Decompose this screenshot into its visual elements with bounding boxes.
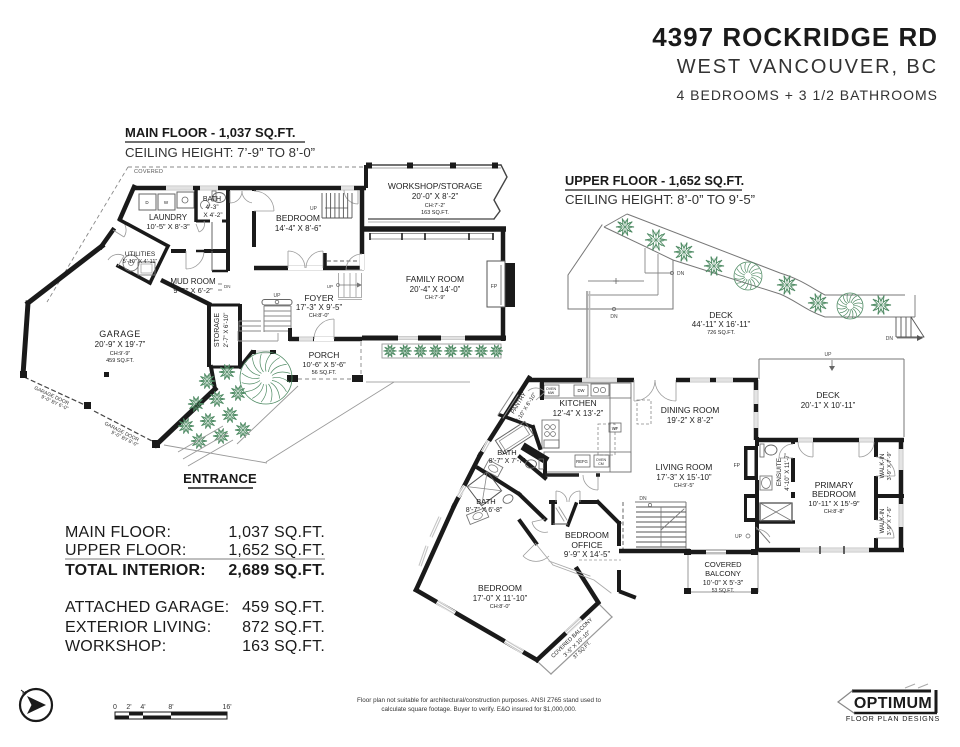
svg-text:459 SQ.FT.: 459 SQ.FT. bbox=[106, 358, 134, 364]
svg-text:CEILING HEIGHT: 8’-0” TO 9’-5”: CEILING HEIGHT: 8’-0” TO 9’-5” bbox=[565, 192, 755, 207]
svg-text:X 4’-2”: X 4’-2” bbox=[203, 212, 222, 219]
svg-text:WEST VANCOUVER, BC: WEST VANCOUVER, BC bbox=[677, 56, 938, 78]
svg-text:WF: WF bbox=[612, 426, 619, 431]
svg-text:BEDROOM: BEDROOM bbox=[812, 489, 856, 499]
svg-text:DN: DN bbox=[886, 336, 894, 342]
svg-text:8’-7” X 7’-7”: 8’-7” X 7’-7” bbox=[489, 458, 526, 465]
svg-text:FLOOR PLAN DESIGNS: FLOOR PLAN DESIGNS bbox=[846, 714, 940, 723]
svg-text:20’-1” X 10’-11”: 20’-1” X 10’-11” bbox=[801, 401, 856, 410]
svg-text:UP: UP bbox=[825, 352, 833, 358]
svg-text:459 SQ.FT.: 459 SQ.FT. bbox=[242, 599, 325, 616]
svg-text:BALCONY: BALCONY bbox=[705, 569, 741, 578]
svg-text:4 BEDROOMS + 3 1/2 BATHROOMS: 4 BEDROOMS + 3 1/2 BATHROOMS bbox=[676, 87, 938, 103]
svg-text:BEDROOM: BEDROOM bbox=[565, 530, 609, 540]
svg-text:FP: FP bbox=[734, 463, 741, 469]
svg-text:DW: DW bbox=[578, 388, 585, 393]
svg-text:WALK-IN: WALK-IN bbox=[880, 454, 886, 479]
svg-text:DECK: DECK bbox=[816, 390, 840, 400]
svg-text:LAUNDRY: LAUNDRY bbox=[149, 213, 188, 222]
svg-text:3’-9” X 7’-9”: 3’-9” X 7’-9” bbox=[887, 451, 893, 480]
svg-text:FOYER: FOYER bbox=[304, 293, 333, 303]
svg-text:9’-9” X 14’-5”: 9’-9” X 14’-5” bbox=[564, 550, 611, 559]
svg-text:BEDROOM: BEDROOM bbox=[478, 583, 522, 593]
svg-text:DINING ROOM: DINING ROOM bbox=[661, 405, 720, 415]
svg-text:OFFICE: OFFICE bbox=[571, 540, 602, 550]
svg-text:WORKSHOP/STORAGE: WORKSHOP/STORAGE bbox=[388, 181, 483, 191]
svg-text:WALK-IN: WALK-IN bbox=[880, 509, 886, 534]
svg-text:4': 4' bbox=[140, 704, 145, 711]
svg-text:17’-0” X 11’-10”: 17’-0” X 11’-10” bbox=[473, 594, 528, 603]
svg-text:BATH: BATH bbox=[497, 448, 516, 457]
svg-text:16': 16' bbox=[222, 704, 231, 711]
svg-text:10’-11” X 15’-9”: 10’-11” X 15’-9” bbox=[808, 499, 860, 508]
svg-text:19’-2” X 8’-2”: 19’-2” X 8’-2” bbox=[667, 416, 714, 425]
svg-text:8': 8' bbox=[168, 704, 173, 711]
svg-text:CH:8’-8”: CH:8’-8” bbox=[824, 509, 845, 515]
svg-text:ENSUITE: ENSUITE bbox=[776, 457, 783, 486]
svg-text:3’-9” X 7’-6”: 3’-9” X 7’-6” bbox=[887, 506, 893, 535]
svg-text:DECK: DECK bbox=[709, 310, 733, 320]
svg-text:DN: DN bbox=[610, 314, 618, 320]
svg-text:MW: MW bbox=[548, 391, 555, 395]
svg-text:4’-10” X 11’-7”: 4’-10” X 11’-7” bbox=[785, 453, 791, 491]
svg-text:CH:7’-9”: CH:7’-9” bbox=[425, 295, 446, 301]
svg-text:DN: DN bbox=[639, 496, 647, 502]
svg-text:MUD ROOM: MUD ROOM bbox=[170, 277, 216, 286]
svg-text:56 SQ.FT.: 56 SQ.FT. bbox=[312, 370, 337, 376]
svg-text:Floor plan not suitable for ar: Floor plan not suitable for architectura… bbox=[357, 697, 601, 704]
svg-text:COVERED: COVERED bbox=[704, 560, 742, 569]
svg-text:FP: FP bbox=[491, 284, 498, 290]
svg-text:10’-0” X 5’-3”: 10’-0” X 5’-3” bbox=[703, 580, 744, 587]
svg-text:44’-11” X 16’-11”: 44’-11” X 16’-11” bbox=[692, 320, 751, 329]
svg-text:CH:9’-9”: CH:9’-9” bbox=[110, 351, 131, 357]
svg-text:PORCH: PORCH bbox=[309, 350, 340, 360]
svg-text:17’-3” X 9’-5”: 17’-3” X 9’-5” bbox=[296, 303, 343, 312]
svg-text:FAMILY ROOM: FAMILY ROOM bbox=[406, 274, 464, 284]
svg-text:UTILITIES: UTILITIES bbox=[125, 251, 156, 258]
svg-text:DN: DN bbox=[224, 284, 231, 289]
svg-text:MAIN FLOOR:: MAIN FLOOR: bbox=[65, 524, 171, 541]
svg-text:GARAGE: GARAGE bbox=[99, 329, 141, 339]
svg-text:20’-9” X 19’-7”: 20’-9” X 19’-7” bbox=[95, 340, 146, 349]
svg-text:1,037 SQ.FT.: 1,037 SQ.FT. bbox=[228, 524, 325, 541]
svg-text:14’-4” X 8’-6”: 14’-4” X 8’-6” bbox=[275, 224, 322, 233]
svg-text:10’-6” X 5’-6”: 10’-6” X 5’-6” bbox=[302, 360, 346, 369]
svg-text:UPPER FLOOR - 1,652 SQ.FT.: UPPER FLOOR - 1,652 SQ.FT. bbox=[565, 173, 744, 188]
svg-text:UP: UP bbox=[310, 206, 318, 212]
svg-text:BATH: BATH bbox=[476, 497, 495, 506]
svg-text:CH:7’-2”: CH:7’-2” bbox=[425, 203, 446, 209]
svg-text:163 SQ.FT.: 163 SQ.FT. bbox=[242, 638, 325, 655]
svg-text:UP: UP bbox=[735, 534, 743, 540]
svg-text:OPTIMUM: OPTIMUM bbox=[854, 695, 932, 712]
svg-text:53 SQ.FT.: 53 SQ.FT. bbox=[712, 588, 735, 594]
svg-text:KITCHEN: KITCHEN bbox=[559, 398, 596, 408]
svg-text:UP: UP bbox=[274, 293, 282, 299]
svg-text:STORAGE: STORAGE bbox=[214, 313, 221, 347]
svg-text:MAIN FLOOR - 1,037 SQ.FT.: MAIN FLOOR - 1,037 SQ.FT. bbox=[125, 125, 295, 140]
svg-text:2’-7” X 6’-10”: 2’-7” X 6’-10” bbox=[224, 313, 230, 348]
svg-text:WORKSHOP:: WORKSHOP: bbox=[65, 638, 166, 655]
svg-text:TOTAL INTERIOR:: TOTAL INTERIOR: bbox=[65, 562, 206, 579]
svg-text:DN: DN bbox=[677, 271, 685, 277]
svg-text:4397 ROCKRIDGE RD: 4397 ROCKRIDGE RD bbox=[652, 22, 938, 52]
svg-text:2': 2' bbox=[126, 704, 131, 711]
svg-text:20’-4” X 14’-0”: 20’-4” X 14’-0” bbox=[410, 285, 461, 294]
svg-text:10’-5” X 8’-3”: 10’-5” X 8’-3” bbox=[146, 222, 190, 231]
svg-text:REFG: REFG bbox=[576, 459, 588, 464]
svg-text:163 SQ.FT.: 163 SQ.FT. bbox=[421, 210, 449, 216]
svg-text:ENTRANCE: ENTRANCE bbox=[183, 471, 257, 486]
svg-text:20’-0” X 8’-2”: 20’-0” X 8’-2” bbox=[412, 192, 459, 201]
svg-text:COVERED: COVERED bbox=[134, 169, 163, 175]
svg-text:CEILING HEIGHT: 7’-9” TO 8’-0”: CEILING HEIGHT: 7’-9” TO 8’-0” bbox=[125, 145, 315, 160]
svg-text:8’-7” X 6’-8”: 8’-7” X 6’-8” bbox=[466, 507, 503, 514]
svg-text:17’-3” X 15’-10”: 17’-3” X 15’-10” bbox=[656, 473, 711, 482]
svg-text:2,689 SQ.FT.: 2,689 SQ.FT. bbox=[228, 562, 325, 579]
svg-text:ATTACHED GARAGE:: ATTACHED GARAGE: bbox=[65, 599, 229, 616]
svg-text:CH:8’-0”: CH:8’-0” bbox=[490, 604, 511, 610]
svg-text:EXTERIOR LIVING:: EXTERIOR LIVING: bbox=[65, 619, 211, 636]
svg-text:4’-3”: 4’-3” bbox=[205, 204, 218, 211]
svg-text:BATH: BATH bbox=[203, 196, 221, 203]
svg-text:872 SQ.FT.: 872 SQ.FT. bbox=[242, 619, 325, 636]
svg-text:CH:9’-5”: CH:9’-5” bbox=[674, 483, 695, 489]
svg-text:CM: CM bbox=[598, 462, 604, 466]
svg-text:1,652 SQ.FT.: 1,652 SQ.FT. bbox=[228, 542, 325, 559]
svg-text:UPPER FLOOR:: UPPER FLOOR: bbox=[65, 542, 187, 559]
svg-text:726 SQ.FT.: 726 SQ.FT. bbox=[707, 330, 735, 336]
svg-text:0: 0 bbox=[113, 704, 117, 711]
svg-text:UP: UP bbox=[327, 284, 333, 289]
svg-text:calculate square footage. Buye: calculate square footage. Buyer to verif… bbox=[381, 706, 576, 713]
svg-text:CH:8’-0”: CH:8’-0” bbox=[309, 313, 330, 319]
svg-text:BEDROOM: BEDROOM bbox=[276, 213, 320, 223]
svg-text:12’-4” X 13’-2”: 12’-4” X 13’-2” bbox=[553, 409, 604, 418]
svg-text:LIVING ROOM: LIVING ROOM bbox=[656, 462, 713, 472]
svg-text:5’-10” X 4’-11”: 5’-10” X 4’-11” bbox=[123, 259, 158, 265]
